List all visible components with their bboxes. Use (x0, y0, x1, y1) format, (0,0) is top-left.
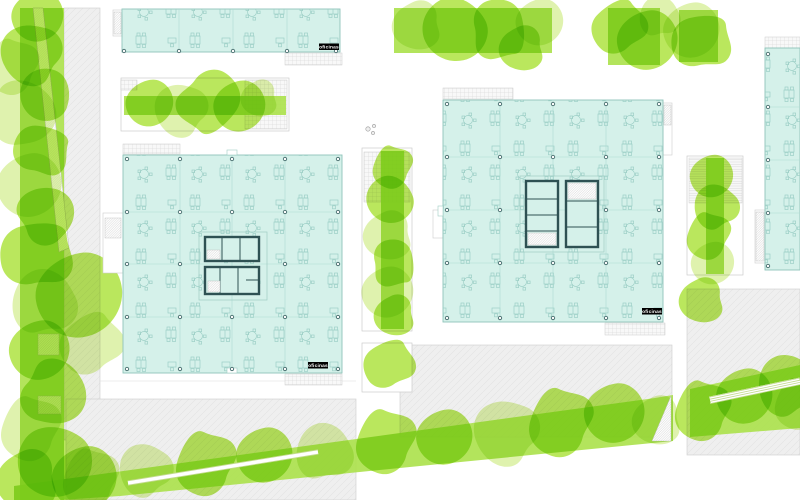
west-block-stair-annex (103, 213, 123, 273)
west-block-entry-north (227, 150, 237, 155)
site-plan-canvas: oficinas (0, 0, 800, 500)
west-block-vent-north (123, 144, 180, 154)
north-bar-label-text: oficinas (319, 45, 339, 51)
east-block-vent-north (443, 88, 513, 99)
west-block-label-text: oficinas (308, 363, 328, 369)
east-block-annex-east (663, 103, 672, 155)
north-bar-label: oficinas (319, 44, 339, 51)
east-edge-stair-annex (755, 210, 765, 263)
east-block-label-text: oficinas (642, 309, 662, 315)
east-edge-vent-north (765, 37, 800, 48)
building-east-edge-bar (755, 37, 800, 270)
west-block-core (199, 232, 267, 300)
north-bar-vent-strip (285, 53, 342, 65)
east-block-label: oficinas (642, 308, 662, 315)
west-block-label: oficinas (308, 362, 328, 369)
building-north-bar: oficinas (113, 9, 342, 65)
tree-marker (366, 124, 376, 134)
building-east-block: oficinas (433, 88, 672, 335)
west-block-vent-south (285, 374, 342, 385)
site-plan-page: oficinas (0, 0, 800, 500)
east-block-vent-south (605, 323, 665, 335)
building-west-block: oficinas (103, 144, 342, 385)
east-block-entry-west (438, 206, 443, 216)
